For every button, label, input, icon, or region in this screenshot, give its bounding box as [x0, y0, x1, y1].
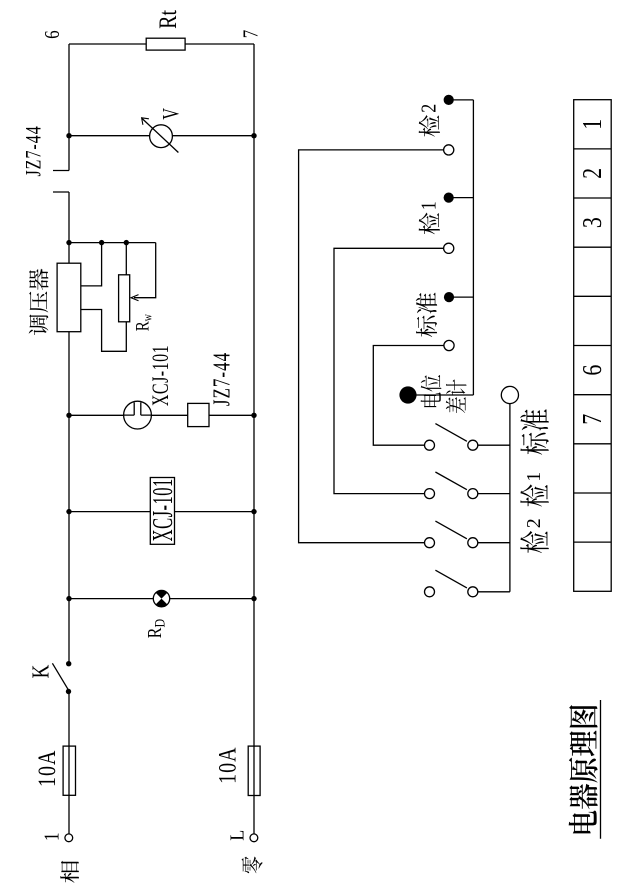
svg-text:7: 7: [578, 414, 608, 425]
svg-text:1: 1: [523, 472, 545, 482]
svg-text:1: 1: [417, 201, 441, 210]
svg-text:10A: 10A: [33, 750, 61, 787]
svg-text:2: 2: [417, 104, 441, 113]
svg-text:K: K: [28, 664, 55, 678]
svg-text:1: 1: [578, 119, 608, 130]
svg-text:L: L: [227, 830, 249, 841]
svg-text:Rt: Rt: [154, 9, 182, 29]
svg-text:6: 6: [41, 30, 64, 39]
svg-text:2: 2: [523, 518, 545, 528]
svg-text:JZ7-44: JZ7-44: [22, 125, 46, 176]
svg-text:7: 7: [240, 29, 263, 38]
svg-text:JZ7-44: JZ7-44: [210, 352, 235, 406]
svg-text:3: 3: [578, 217, 608, 228]
svg-text:2: 2: [578, 168, 608, 179]
svg-text:XCJ-101: XCJ-101: [148, 345, 174, 406]
svg-text:XCJ-101: XCJ-101: [146, 478, 178, 541]
svg-text:6: 6: [578, 365, 608, 376]
svg-text:V: V: [159, 108, 185, 120]
svg-text:1: 1: [41, 832, 64, 840]
svg-text:10A: 10A: [213, 746, 241, 783]
